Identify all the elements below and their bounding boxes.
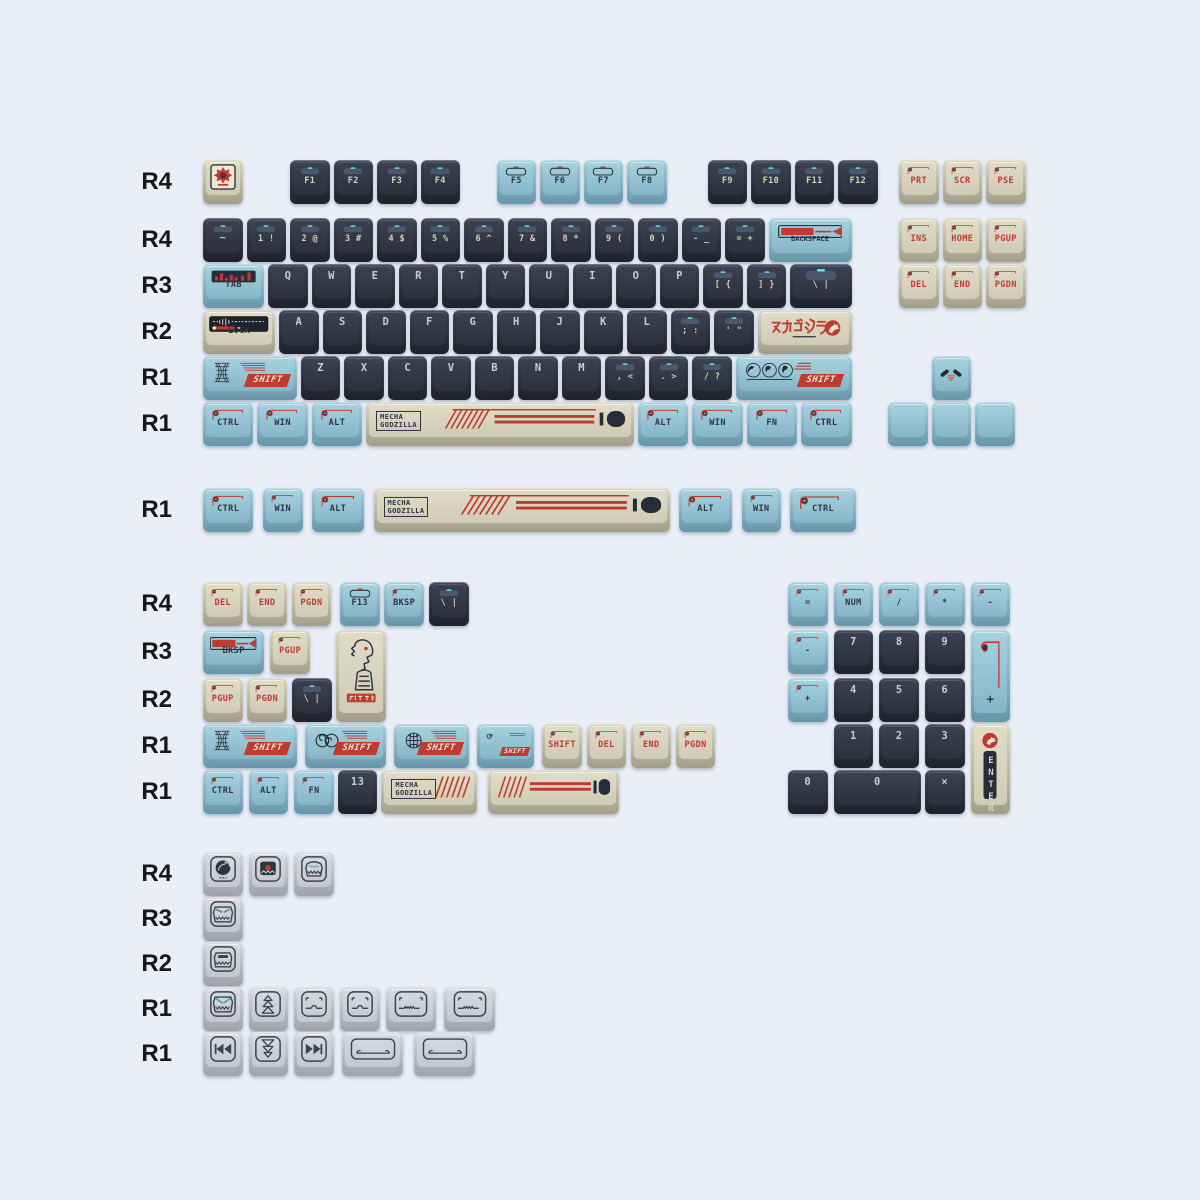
row-label-r4: R4 bbox=[100, 168, 172, 196]
keycap-del: DEL bbox=[587, 724, 627, 768]
key-legend: [ { bbox=[706, 281, 740, 290]
keycap-blank: \ | bbox=[790, 264, 851, 308]
keycap-0: 0 bbox=[788, 770, 828, 814]
keycap-13: 13 bbox=[338, 770, 378, 814]
keycap-4: 4 bbox=[834, 678, 874, 722]
key-legend: WIN bbox=[266, 505, 300, 514]
key-legend: MECHA GODZILLA bbox=[391, 778, 436, 798]
keycap-face: ; : bbox=[674, 312, 708, 345]
keycap-face: C bbox=[391, 358, 425, 391]
keycap-m: M bbox=[562, 356, 602, 400]
keycap-face: + bbox=[791, 680, 825, 713]
keycap-win: WIN bbox=[742, 488, 782, 532]
keycap-i: I bbox=[573, 264, 613, 308]
keycap-spacebar: MECHA GODZILLA bbox=[374, 488, 670, 532]
keycap-godzilla-circle-novelty bbox=[203, 852, 243, 896]
key-legend: CTRL bbox=[206, 787, 240, 796]
key-legend: 9 bbox=[928, 637, 962, 648]
keycap-face: G bbox=[456, 312, 490, 345]
keycap-face: 8 bbox=[882, 632, 916, 665]
key-legend: SHIFT bbox=[797, 374, 844, 387]
keycap-6: 6 bbox=[925, 678, 965, 722]
row-label-r1: R1 bbox=[100, 364, 172, 392]
keycap-bksp: BKSP bbox=[384, 582, 424, 626]
key-legend: A bbox=[282, 317, 316, 328]
keycap-face: = bbox=[791, 584, 825, 617]
key-legend: BACKSPACE bbox=[772, 236, 849, 243]
spikes-down-icon bbox=[254, 1035, 282, 1063]
angry-teeth-icon bbox=[209, 990, 237, 1018]
key-legend: 5 bbox=[882, 685, 916, 696]
keycap-d: D bbox=[366, 310, 406, 354]
keycap-k: K bbox=[584, 310, 624, 354]
key-legend: * bbox=[928, 599, 962, 608]
bridge-zigzag-icon bbox=[451, 990, 488, 1018]
key-legend: S bbox=[326, 317, 360, 328]
keycap-face: DEL bbox=[206, 584, 240, 617]
keycap-face bbox=[252, 1034, 286, 1067]
keycap-face bbox=[206, 899, 240, 932]
keycap-enter-mechagodzilla bbox=[758, 310, 852, 354]
keycap-face bbox=[761, 312, 849, 345]
keycap-face: / bbox=[882, 584, 916, 617]
key-legend: PGDN bbox=[679, 741, 713, 750]
keycap-face: F8 bbox=[630, 162, 664, 195]
key-legend: END bbox=[250, 599, 284, 608]
keycap-robot-teeth-novelty bbox=[294, 852, 334, 896]
keycap-pse: PSE bbox=[986, 160, 1026, 204]
key-legend: SCR bbox=[946, 177, 980, 186]
keycap-face: 3 # bbox=[337, 220, 371, 253]
keycap-4: 4 $ bbox=[377, 218, 417, 262]
keycap-face bbox=[491, 772, 616, 805]
row-label-r3: R3 bbox=[100, 905, 172, 933]
keycap-bridge bbox=[294, 987, 334, 1031]
keycap-face: - bbox=[974, 584, 1008, 617]
key-legend: 13 bbox=[341, 777, 375, 788]
keycap-u: U bbox=[529, 264, 569, 308]
keycap-face bbox=[389, 989, 433, 1022]
keycap-numpad-enter: ENTER bbox=[971, 724, 1011, 814]
keycap-esc bbox=[203, 160, 243, 204]
key-legend: WIN bbox=[695, 419, 739, 428]
keycap-face: [ { bbox=[706, 266, 740, 299]
keycap-t: T bbox=[442, 264, 482, 308]
keycap-face bbox=[297, 989, 331, 1022]
keycap-face bbox=[206, 989, 240, 1022]
keycap-9: 9 bbox=[925, 630, 965, 674]
keycap-a: A bbox=[279, 310, 319, 354]
key-legend: 7 bbox=[837, 637, 871, 648]
keycap-bridge-bar bbox=[342, 1032, 403, 1076]
keycap-v: V bbox=[431, 356, 471, 400]
key-legend: DEL bbox=[206, 599, 240, 608]
keycap-face: PRT bbox=[902, 162, 936, 195]
key-legend: / bbox=[882, 599, 916, 608]
key-legend: SHIFT bbox=[545, 741, 579, 750]
keycap-face: \ | bbox=[295, 680, 329, 713]
keycap-face: PGUP bbox=[206, 680, 240, 713]
keycap-face: CTRL bbox=[804, 404, 848, 437]
hatch-right-icon bbox=[434, 775, 470, 799]
keycap-end: END bbox=[247, 582, 287, 626]
keycap-face: PGUP bbox=[989, 220, 1023, 253]
key-legend: 0 bbox=[837, 777, 918, 788]
keycap-face: 1 bbox=[837, 726, 871, 759]
keycap-face: HOME bbox=[946, 220, 980, 253]
keycap-5: 5 bbox=[879, 678, 919, 722]
key-legend: PRT bbox=[902, 177, 936, 186]
keycap-face: SHIFT bbox=[480, 726, 531, 759]
bridge-icon bbox=[300, 990, 328, 1018]
keycap-face bbox=[206, 854, 240, 887]
key-legend: 5 % bbox=[424, 235, 458, 244]
keycap-face: FN bbox=[297, 772, 331, 805]
keycap-face: MECHA GODZILLA bbox=[384, 772, 474, 805]
key-legend: R bbox=[402, 271, 436, 282]
keycap-face: SCR bbox=[946, 162, 980, 195]
bridge-bar-icon bbox=[350, 1035, 396, 1063]
angry-eyes-icon bbox=[209, 900, 237, 928]
keycap-face: 5 % bbox=[424, 220, 458, 253]
key-legend: PGDN bbox=[989, 281, 1023, 290]
keycap-face: F4 bbox=[424, 162, 458, 195]
keycap-f8: F8 bbox=[627, 160, 667, 204]
key-legend: PGUP bbox=[989, 235, 1023, 244]
keycap-c: C bbox=[388, 356, 428, 400]
key-legend: END bbox=[946, 281, 980, 290]
key-legend: 1 ! bbox=[250, 235, 284, 244]
circle-gz-icon bbox=[982, 731, 999, 750]
key-legend: ALT bbox=[252, 787, 286, 796]
keycap-end: END bbox=[631, 724, 671, 768]
keycap-face bbox=[297, 854, 331, 887]
keycap-face: PGDN bbox=[295, 584, 329, 617]
keycap-alt: ALT bbox=[312, 402, 362, 446]
keycap-blank: - _ bbox=[682, 218, 722, 262]
keycap-blank: , < bbox=[605, 356, 645, 400]
key-legend: END bbox=[634, 741, 668, 750]
keycap-face: E bbox=[358, 266, 392, 299]
keycap-l: L bbox=[627, 310, 667, 354]
keycap-2: 2 bbox=[879, 724, 919, 768]
keycap-face: SHIFT bbox=[206, 358, 294, 391]
robot-teeth-icon bbox=[300, 855, 328, 883]
keycap-bridge-zigzag bbox=[444, 987, 494, 1031]
keycap-face: F5 bbox=[500, 162, 534, 195]
keycap-face: × bbox=[928, 772, 962, 805]
keycap-face: CTRL bbox=[206, 404, 250, 437]
keycap-blank: [ { bbox=[703, 264, 743, 308]
key-legend: WIN bbox=[260, 419, 304, 428]
keycap-stripe-spacebar bbox=[488, 770, 619, 814]
key-legend: 4 bbox=[837, 685, 871, 696]
keycap-face: ALT bbox=[315, 490, 362, 523]
keycap-face: WIN bbox=[695, 404, 739, 437]
keycap-del: DEL bbox=[203, 582, 243, 626]
keycap-face: Y bbox=[489, 266, 523, 299]
row-label-r1: R1 bbox=[100, 496, 172, 524]
keycap-ctrl: CTRL bbox=[790, 488, 856, 532]
keycap-ctrl: CTRL bbox=[203, 770, 243, 814]
key-legend: FN bbox=[297, 787, 331, 796]
keycap-num: NUM bbox=[834, 582, 874, 626]
key-legend: × bbox=[928, 777, 962, 788]
keycap-set-layout-image: R4R4R3R2R1R1R1R4R3R2R1R1R4R3R2R1R1F1F2F3… bbox=[0, 0, 1200, 1200]
key-legend: F1 bbox=[293, 177, 327, 186]
keycap-face: SHIFT bbox=[739, 358, 849, 391]
key-legend: F bbox=[413, 317, 447, 328]
keycap-9: 9 ( bbox=[595, 218, 635, 262]
keycap-backspace: BACKSPACE bbox=[769, 218, 852, 262]
row-label-r1: R1 bbox=[100, 410, 172, 438]
keycap-face: PGUP bbox=[273, 632, 307, 665]
keycap-alt: ALT bbox=[249, 770, 289, 814]
keycap-arrow-up bbox=[932, 356, 972, 400]
keycap-h: H bbox=[497, 310, 537, 354]
keycap-q: Q bbox=[268, 264, 308, 308]
keycap-win: WIN bbox=[257, 402, 307, 446]
keycap-fn: FN bbox=[747, 402, 797, 446]
keycap-face: 0 bbox=[791, 772, 825, 805]
keycap-spikes-down bbox=[249, 1032, 289, 1076]
keycap-face: , < bbox=[608, 358, 642, 391]
keycap-prt: PRT bbox=[899, 160, 939, 204]
key-legend: = bbox=[791, 599, 825, 608]
key-legend: F13 bbox=[343, 599, 377, 608]
keycap-7: 7 bbox=[834, 630, 874, 674]
keycap-face bbox=[343, 989, 377, 1022]
keycap-face bbox=[345, 1034, 400, 1067]
keycap-x: X bbox=[344, 356, 384, 400]
keycap-face: TAB bbox=[206, 266, 261, 299]
katakana-logo-icon bbox=[766, 318, 844, 338]
key-legend: ; : bbox=[674, 327, 708, 336]
keycap-face: CTRL bbox=[206, 772, 240, 805]
key-legend: + bbox=[974, 693, 1008, 705]
keycap-face: * bbox=[928, 584, 962, 617]
key-legend: I bbox=[576, 271, 610, 282]
keycap-pgdn: PGDN bbox=[247, 678, 287, 722]
key-legend: N bbox=[521, 363, 555, 374]
row-label-r4: R4 bbox=[100, 226, 172, 254]
key-legend: X bbox=[347, 363, 381, 374]
key-legend: SHIFT bbox=[243, 374, 290, 387]
row-label-r1: R1 bbox=[100, 995, 172, 1023]
keycap-z: Z bbox=[301, 356, 341, 400]
keycap-face: BKSP bbox=[206, 632, 261, 665]
keycap-backspace-15u: BKSP bbox=[203, 630, 264, 674]
keycap-face bbox=[206, 944, 240, 977]
key-legend: , < bbox=[608, 373, 642, 382]
keycap-face: B bbox=[478, 358, 512, 391]
robot-visor-icon bbox=[209, 945, 237, 973]
bridge-bar-icon bbox=[421, 1035, 467, 1063]
keycap-face: LOCK bbox=[206, 312, 272, 345]
keycap-face: ALT bbox=[682, 490, 729, 523]
key-legend: F6 bbox=[543, 177, 577, 186]
key-legend: \ | bbox=[793, 281, 848, 290]
mecha-up-icon bbox=[941, 363, 962, 383]
key-legend: ENTER bbox=[984, 751, 997, 799]
keycap-face: + bbox=[974, 632, 1008, 713]
keycap-face: J bbox=[543, 312, 577, 345]
keycap-face: 9 bbox=[928, 632, 962, 665]
key-legend: T bbox=[445, 271, 479, 282]
keycap-f12: F12 bbox=[838, 160, 878, 204]
keycap-left-shift: SHIFT bbox=[203, 356, 297, 400]
keycap-face: P bbox=[663, 266, 697, 299]
keycap-arrow-down bbox=[932, 402, 972, 446]
keycap-face bbox=[417, 1034, 472, 1067]
keycap-s: S bbox=[323, 310, 363, 354]
rewind-icon bbox=[209, 1035, 237, 1063]
keycap-robot-red-eye-novelty bbox=[249, 852, 289, 896]
keycap-face: F6 bbox=[543, 162, 577, 195]
keycap-y: Y bbox=[486, 264, 526, 308]
bridge-icon bbox=[346, 990, 374, 1018]
key-legend: F8 bbox=[630, 177, 664, 186]
keycap-face: ENTER bbox=[974, 726, 1008, 805]
key-legend: DEL bbox=[902, 281, 936, 290]
keycap-arrow-right bbox=[975, 402, 1015, 446]
key-legend: D bbox=[369, 317, 403, 328]
keycap-face: 0 ) bbox=[641, 220, 675, 253]
key-legend: M bbox=[565, 363, 599, 374]
keycap-w: W bbox=[312, 264, 352, 308]
key-legend: J bbox=[543, 317, 577, 328]
keycap-3: 3 bbox=[925, 724, 965, 768]
keycap-pgdn: PGDN bbox=[676, 724, 716, 768]
keycap-tab: TAB bbox=[203, 264, 264, 308]
keycap-face: F13 bbox=[343, 584, 377, 617]
keycap-blank: / bbox=[879, 582, 919, 626]
keycap-face: / ? bbox=[695, 358, 729, 391]
row-label-r1: R1 bbox=[100, 1040, 172, 1068]
keycap-face bbox=[978, 404, 1012, 437]
key-legend: + bbox=[791, 695, 825, 704]
key-legend: L bbox=[630, 317, 664, 328]
key-legend: F3 bbox=[380, 177, 414, 186]
keycap-face: 2 @ bbox=[293, 220, 327, 253]
key-legend: 1 bbox=[837, 731, 871, 742]
keycap-face: I bbox=[576, 266, 610, 299]
keycap-6: 6 ^ bbox=[464, 218, 504, 262]
keycap-blank: × bbox=[925, 770, 965, 814]
keycap-blank: ~ bbox=[203, 218, 243, 262]
keycap-face: CTRL bbox=[206, 490, 250, 523]
keycap-f9: F9 bbox=[708, 160, 748, 204]
key-legend: 7 & bbox=[511, 235, 545, 244]
key-legend: U bbox=[532, 271, 566, 282]
keycap-face: PGDN bbox=[989, 266, 1023, 299]
keycap-face bbox=[935, 404, 969, 437]
keycap-face: - _ bbox=[685, 220, 719, 253]
key-legend: CTRL bbox=[206, 505, 250, 514]
keycap-face: - bbox=[791, 632, 825, 665]
key-legend: K bbox=[587, 317, 621, 328]
key-legend: 8 * bbox=[554, 235, 588, 244]
keycap-b: B bbox=[475, 356, 515, 400]
keycap-face: MECHA GODZILLA bbox=[377, 490, 667, 523]
keycap-face bbox=[891, 404, 925, 437]
keycap-face: Z bbox=[304, 358, 338, 391]
keycap-arrow-left bbox=[888, 402, 928, 446]
key-legend: 4 $ bbox=[380, 235, 414, 244]
keycap-f11: F11 bbox=[795, 160, 835, 204]
key-legend: C bbox=[391, 363, 425, 374]
keycap-face: F2 bbox=[337, 162, 371, 195]
keycap-face: 13 bbox=[341, 772, 375, 805]
keycap-face: FN bbox=[750, 404, 794, 437]
keycap-face bbox=[252, 854, 286, 887]
keycap-face: DEL bbox=[902, 266, 936, 299]
key-legend: W bbox=[315, 271, 349, 282]
key-legend: = + bbox=[728, 235, 762, 244]
keycap-face: T bbox=[445, 266, 479, 299]
key-legend: HOME bbox=[946, 235, 980, 244]
key-legend: ALT bbox=[315, 505, 362, 514]
row-label-r3: R3 bbox=[100, 638, 172, 666]
gz-circle-icon bbox=[209, 855, 237, 883]
key-legend: 8 bbox=[882, 637, 916, 648]
keycap-n: N bbox=[518, 356, 558, 400]
keycap-f3: F3 bbox=[377, 160, 417, 204]
key-legend: - bbox=[791, 647, 825, 656]
keycap-face: 6 ^ bbox=[467, 220, 501, 253]
keycap-end: END bbox=[943, 264, 983, 308]
robot-red-eye-icon bbox=[254, 855, 282, 883]
keycap-5: 5 % bbox=[421, 218, 461, 262]
keycap-blank: \ | bbox=[292, 678, 332, 722]
keycap-pgdn: PGDN bbox=[292, 582, 332, 626]
keycap-0: 0 ) bbox=[638, 218, 678, 262]
keycap-face: ~ bbox=[206, 220, 240, 253]
key-legend: 3 bbox=[928, 731, 962, 742]
keycap-shift: SHIFT bbox=[394, 724, 468, 768]
keycap-e: E bbox=[355, 264, 395, 308]
key-legend: ALT bbox=[641, 419, 685, 428]
keycap-face: BKSP bbox=[387, 584, 421, 617]
keycap-mecha-bar: MECHA GODZILLA bbox=[381, 770, 477, 814]
keycap-face: W bbox=[315, 266, 349, 299]
keycap-rewind bbox=[203, 1032, 243, 1076]
keycap-robot-visor-novelty bbox=[203, 942, 243, 986]
keycap-blank: . > bbox=[649, 356, 689, 400]
key-legend: PGDN bbox=[295, 599, 329, 608]
keycap-pgup: PGUP bbox=[986, 218, 1026, 262]
keycap-face bbox=[447, 989, 491, 1022]
key-legend: O bbox=[619, 271, 653, 282]
keycap-face: PGDN bbox=[250, 680, 284, 713]
keycap-face: F7 bbox=[587, 162, 621, 195]
keycap-face: 1 ! bbox=[250, 220, 284, 253]
key-legend: SHIFT bbox=[416, 742, 463, 755]
key-legend: WIN bbox=[745, 505, 779, 514]
row-label-r1: R1 bbox=[100, 732, 172, 760]
row-label-r2: R2 bbox=[100, 686, 172, 714]
keycap-blank: \ | bbox=[429, 582, 469, 626]
keycap-ctrl: CTRL bbox=[203, 402, 253, 446]
keycap-face: ] } bbox=[750, 266, 784, 299]
keycap-face: 0 bbox=[837, 772, 918, 805]
keycap-pgdn: PGDN bbox=[986, 264, 1026, 308]
keycap-face: ALT bbox=[641, 404, 685, 437]
keycap-spikes-up bbox=[249, 987, 289, 1031]
keycap-face: ALT bbox=[252, 772, 286, 805]
stripe-bar-icon bbox=[495, 775, 612, 799]
keycap-ctrl: CTRL bbox=[801, 402, 851, 446]
